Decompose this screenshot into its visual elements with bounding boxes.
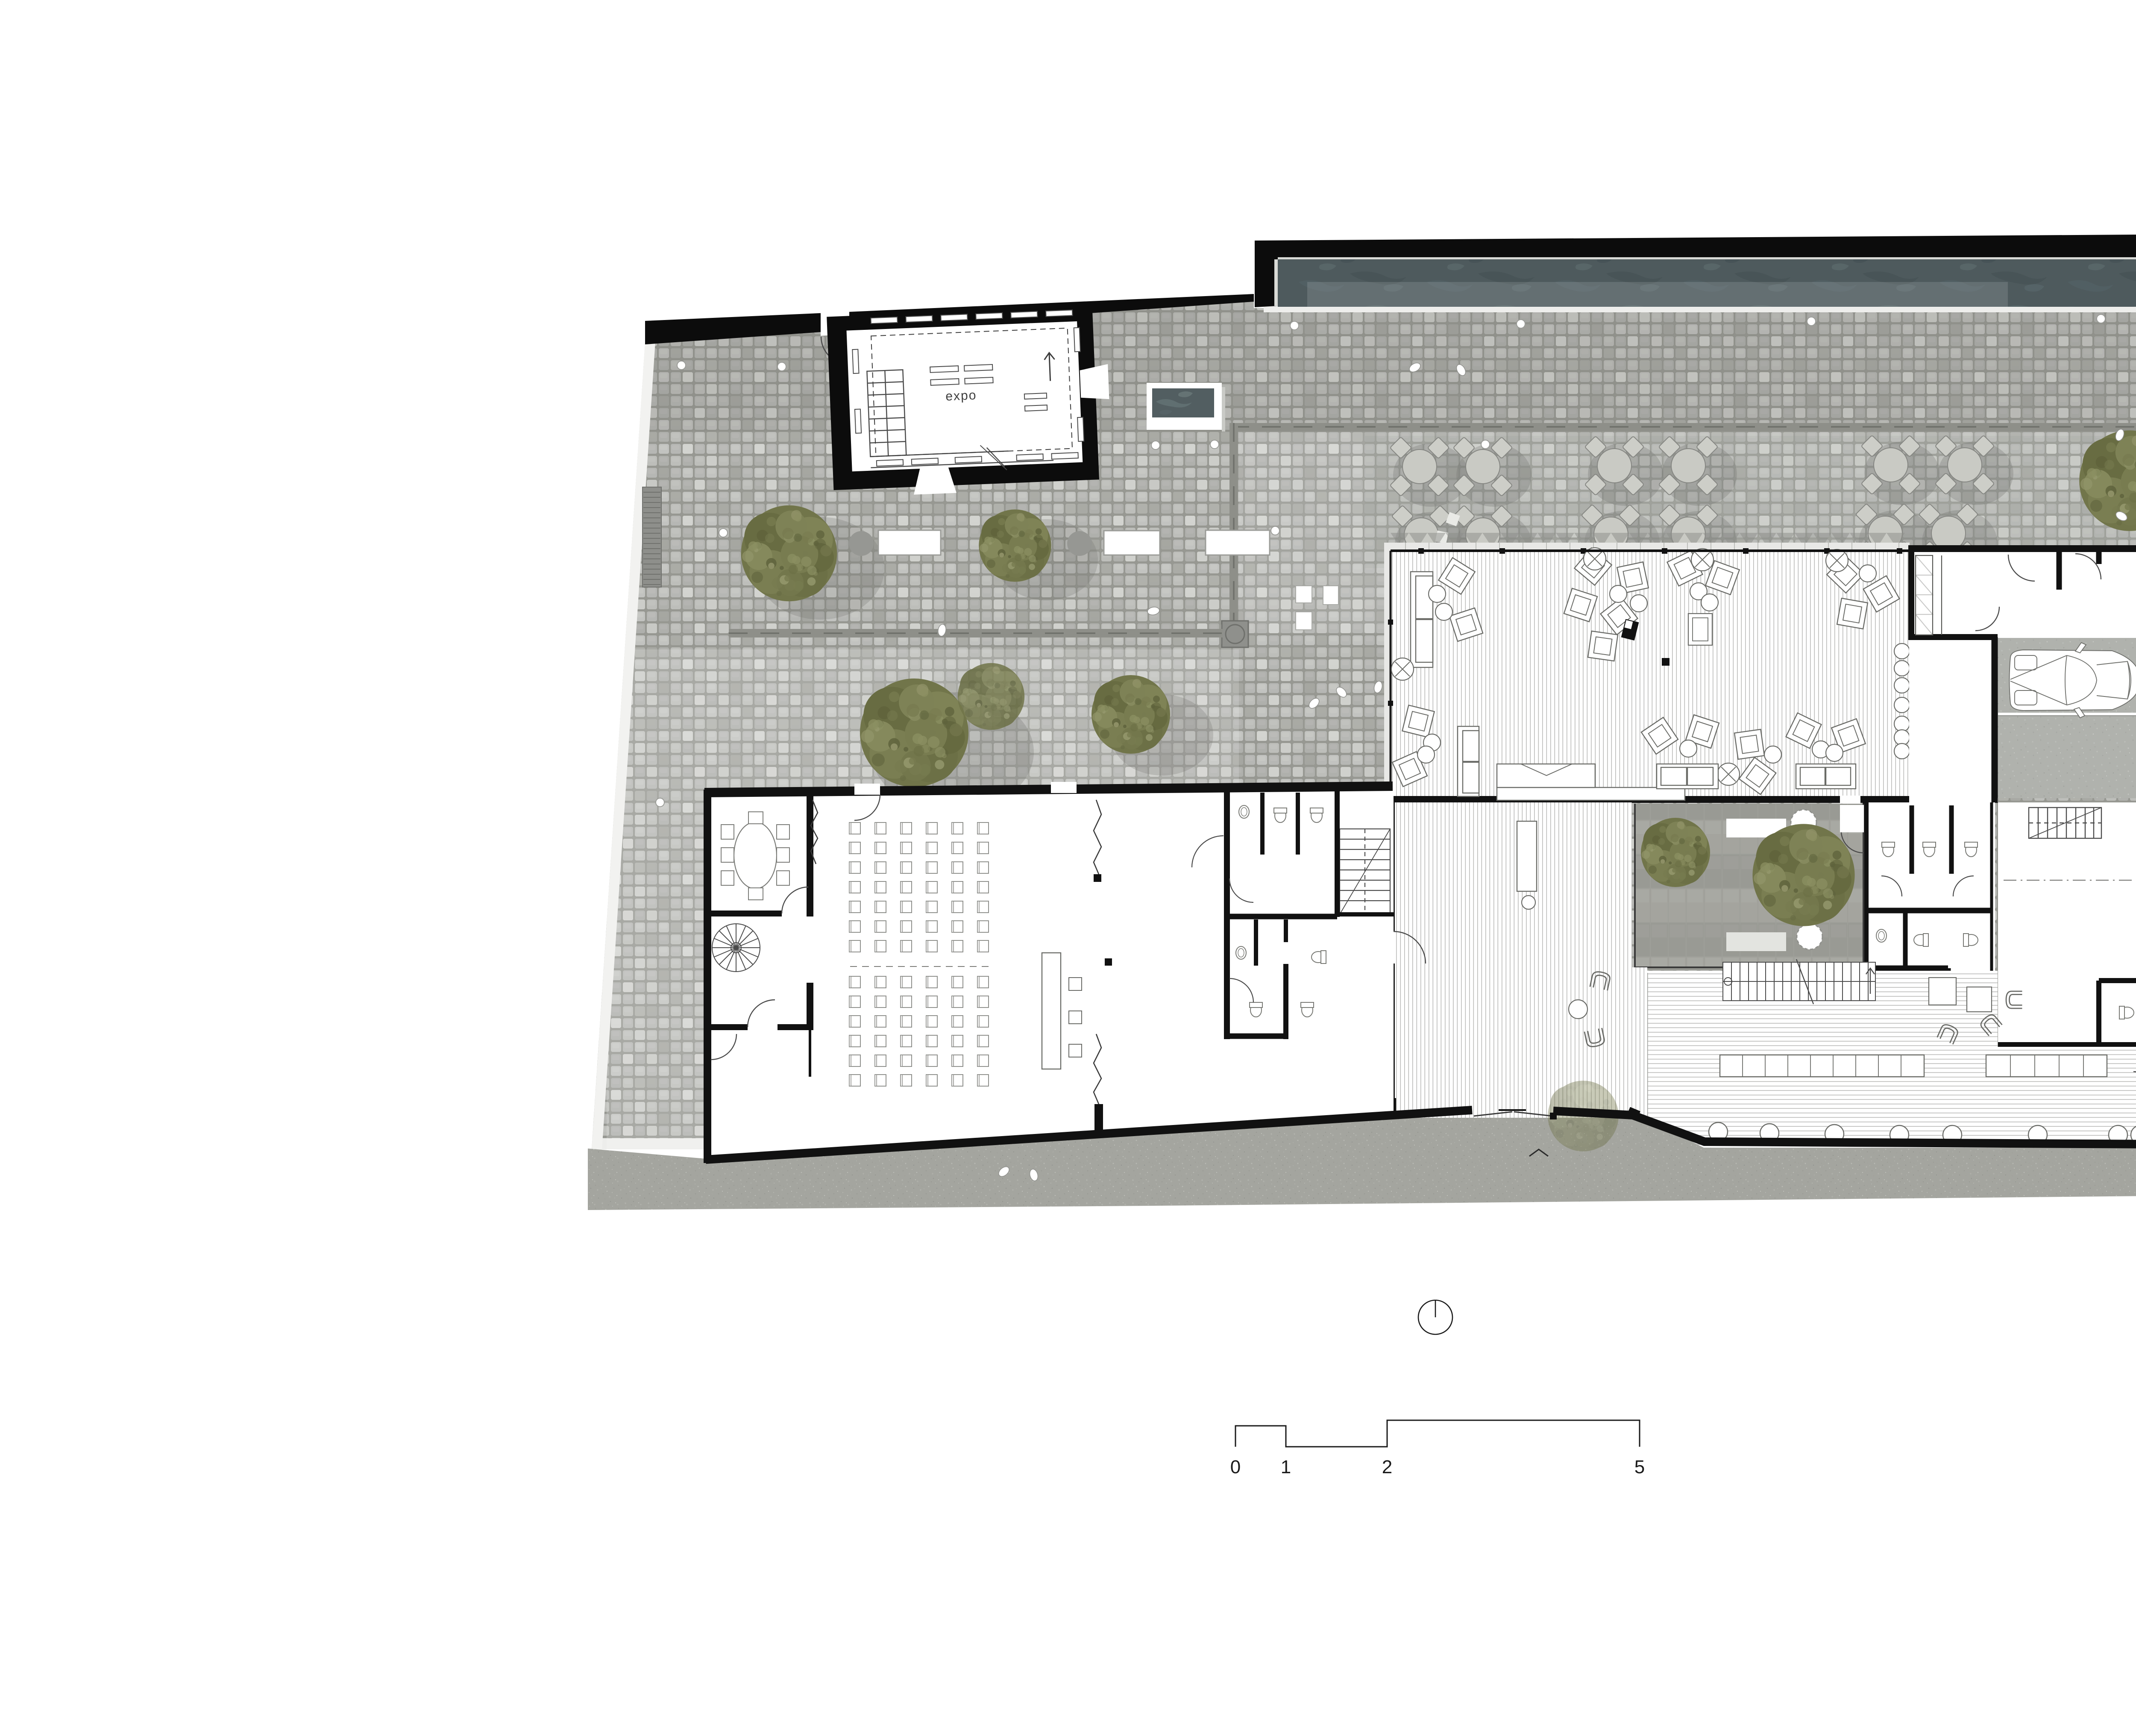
svg-text:0: 0 [1230, 1457, 1241, 1478]
svg-text:5: 5 [1634, 1457, 1645, 1478]
svg-text:2: 2 [1382, 1457, 1392, 1478]
svg-text:expo: expo [945, 388, 977, 404]
svg-text:1: 1 [1281, 1457, 1291, 1478]
